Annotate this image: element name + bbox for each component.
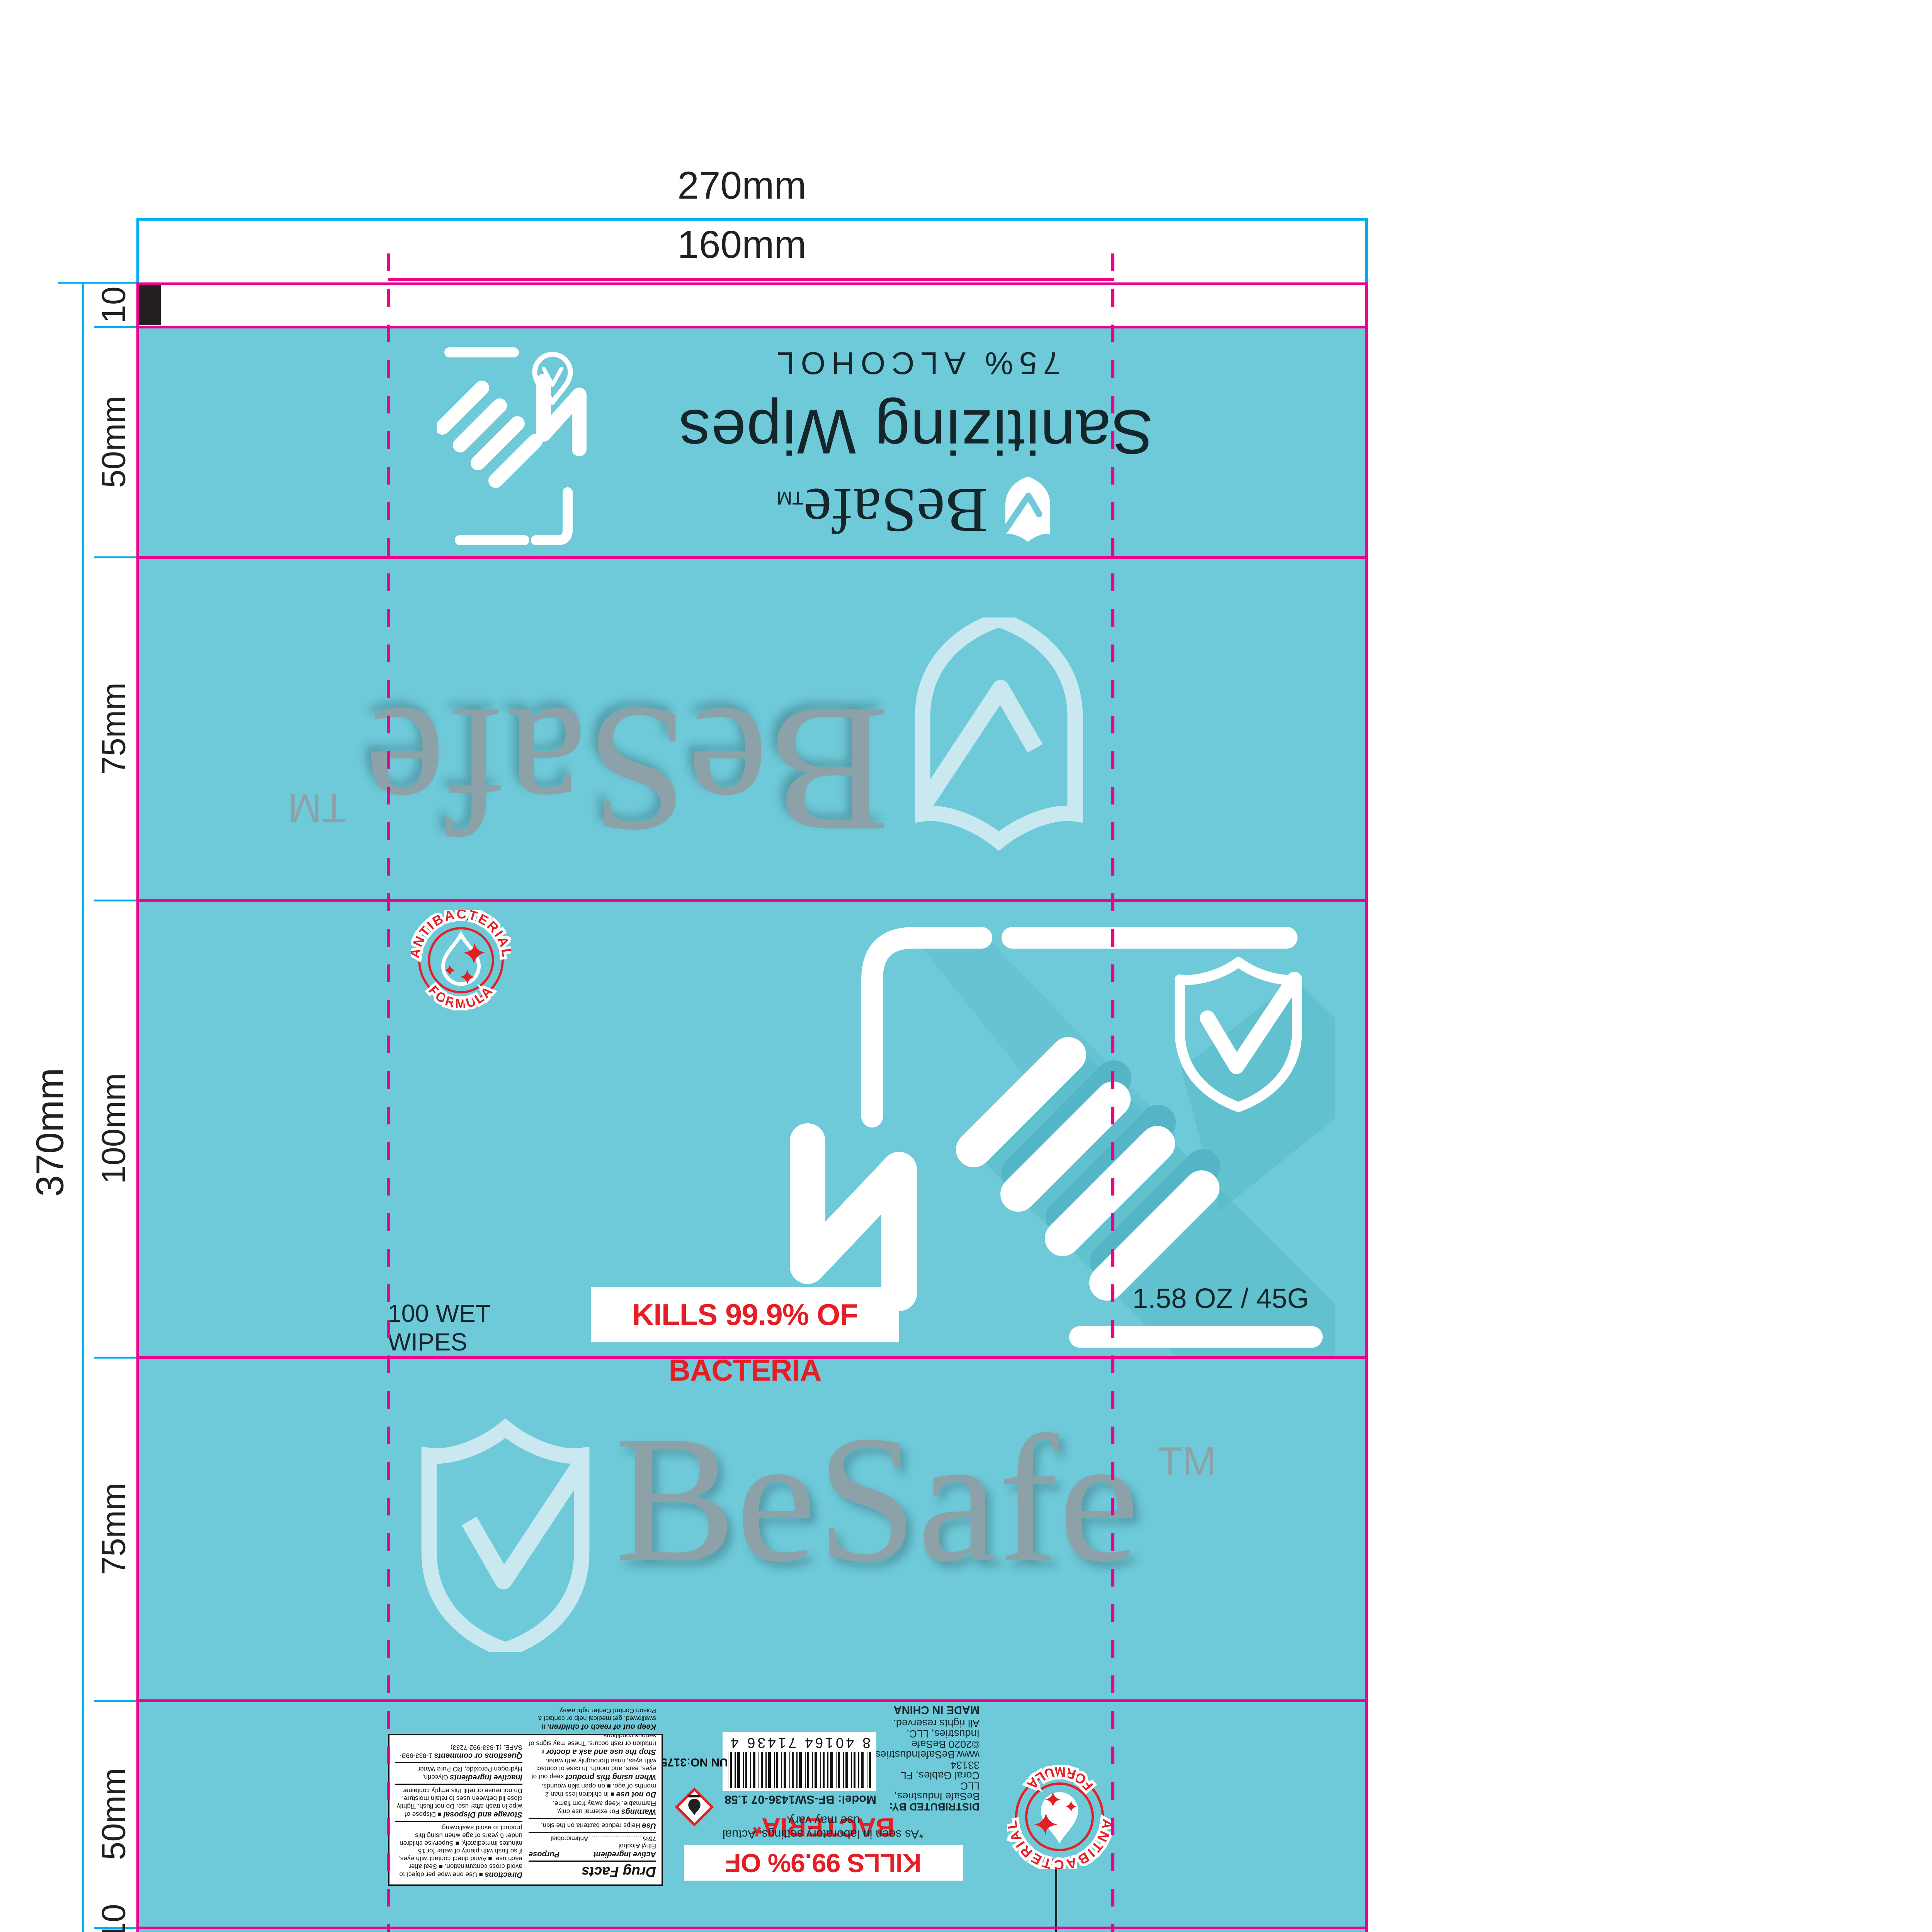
svg-text:FORMULA: FORMULA	[425, 983, 496, 1010]
df-body: Helps reduce bacteria on the skin.	[541, 1822, 640, 1829]
df-heading: Use	[642, 1821, 656, 1830]
drug-facts-title: Drug Facts	[529, 1864, 656, 1880]
dim-label-370mm: 370mm	[23, 1009, 77, 1256]
brand-tm: TM	[777, 488, 803, 508]
df-heading: When using this product	[566, 1773, 656, 1781]
panel-front: ANTIBACTERIAL FORMULA	[136, 900, 1368, 1357]
crease-line-3	[136, 899, 1368, 902]
dim-label-270mm: 270mm	[626, 164, 858, 207]
dim-line-270mm	[136, 218, 1368, 221]
tick-2	[94, 556, 137, 558]
df-heading: Purpose	[529, 1850, 560, 1859]
df-body: ■ Use one wipe per object to avoid cross…	[398, 1824, 522, 1878]
distributor-line: ©2020 BeSafe Industries, LLC.	[877, 1728, 980, 1749]
shield-check-icon	[1001, 476, 1055, 546]
section-label-10-top: 10	[91, 228, 137, 382]
back-claim-strip: KILLS 99.9% OF BACTERIA*	[684, 1845, 963, 1881]
watermark-name-2: BeSafe	[615, 1415, 1139, 1582]
crease-line-6	[136, 1927, 1368, 1929]
callout-line	[1055, 1869, 1057, 1932]
section-label-10-bottom: 10	[91, 1872, 137, 1932]
dim-line-160mm	[388, 278, 1114, 281]
watermark-name: BeSafe	[365, 687, 889, 854]
svg-text:FORMULA: FORMULA	[1023, 1765, 1096, 1794]
registration-mark	[139, 285, 161, 325]
section-label-50mm-top: 50mm	[91, 365, 137, 519]
cut-line-right	[1365, 282, 1368, 1932]
crease-line-1	[136, 326, 1368, 328]
df-heading: Keep out of reach of children.	[547, 1723, 656, 1731]
barcode-digits: 8 40164 71436 4	[723, 1735, 876, 1751]
watermark-logo-2: BeSafe TM	[415, 1415, 1216, 1652]
shield-check-watermark-icon	[415, 1415, 596, 1652]
df-body: Ethyl Alcohol 75%.......................…	[529, 1835, 656, 1850]
made-in-china: MADE IN CHINA	[877, 1704, 980, 1715]
section-label-50mm-bottom: 50mm	[91, 1737, 137, 1891]
tick-3	[94, 900, 137, 901]
dim-label-160mm: 160mm	[626, 223, 858, 266]
tick-5	[94, 1700, 137, 1702]
dim-line-370mm	[82, 282, 84, 1932]
net-weight: 1.58 OZ / 45G	[1133, 1283, 1349, 1315]
distributor-line: BeSafe Industries, LLC	[877, 1781, 980, 1801]
fold-line-left	[387, 253, 390, 1932]
top-flap-text: BeSafeTM Sanitizing Wipes 75% ALCOHOL	[626, 345, 1206, 546]
fold-line-right	[1111, 253, 1114, 1932]
badge-back-arc-bottom: FORMULA	[1023, 1765, 1096, 1794]
barcode-bars	[728, 1752, 871, 1788]
ghs-flammable-icon	[675, 1772, 714, 1828]
distributor-line: www.BeSafeIndustries.com	[877, 1749, 980, 1760]
df-heading: Stop the use and ask a doctor	[546, 1748, 656, 1756]
crease-line-4	[136, 1356, 1368, 1359]
df-heading: Storage and Disposal	[444, 1810, 523, 1819]
product-name: Sanitizing Wipes	[626, 396, 1206, 468]
cut-line-left	[136, 282, 139, 1932]
crease-line-5	[136, 1699, 1368, 1702]
crease-line-2	[136, 556, 1368, 559]
distributor-line: DISTRIBUTED BY:	[877, 1801, 980, 1812]
panel-top-flap: BeSafeTM Sanitizing Wipes 75% ALCOHOL	[136, 327, 1368, 557]
watermark-tm: TM	[288, 784, 347, 831]
section-label-100mm: 100mm	[91, 1051, 137, 1206]
shield-check-watermark-icon	[908, 617, 1090, 854]
panel-back-top: BeSafe TM	[136, 557, 1368, 900]
glue-strip	[139, 285, 1365, 327]
hand-wipe-icon	[437, 340, 593, 550]
dim-ext-right	[1365, 221, 1368, 284]
panel-bottom-flap: ANTIBACTERIAL FORMULA KILLS 99.9% OF BAC…	[136, 1701, 1368, 1928]
watermark-tm-2: TM	[1158, 1439, 1216, 1485]
un-number: UN NO:3175	[651, 1755, 738, 1769]
df-heading: Active Ingredient	[594, 1850, 656, 1859]
lab-disclaimer: *As seen in laboratory settings. Actual …	[719, 1813, 927, 1841]
panel-back-bottom: BeSafe TM	[136, 1357, 1368, 1701]
distributor-line: All rights reserved.	[877, 1718, 980, 1728]
brand-logo: BeSafeTM	[626, 476, 1206, 546]
alcohol-claim: 75% ALCOHOL	[626, 345, 1206, 381]
dieline-artboard: 270mm 160mm 370mm 10 50mm 75mm 100mm 75m…	[0, 0, 1932, 1932]
drug-facts-label: Drug Facts Active IngredientPurpose Ethy…	[388, 1734, 663, 1886]
kills-claim-box: KILLS 99.9% OF BACTERIA	[591, 1287, 899, 1342]
cut-line-top	[136, 282, 1368, 285]
section-label-75mm-top: 75mm	[91, 651, 137, 806]
wipe-count: 100 WET WIPES	[388, 1299, 565, 1356]
distributor-line: Coral Gables, FL 33134	[877, 1760, 980, 1781]
badge-arc-bottom: FORMULA	[425, 983, 496, 1010]
watermark-logo: BeSafe TM	[288, 617, 1090, 854]
df-heading: Inactive Ingredients	[450, 1773, 522, 1782]
barcode: 8 40164 71436 4	[723, 1732, 876, 1791]
antibacterial-badge: ANTIBACTERIAL FORMULA	[411, 910, 511, 1010]
df-heading: Questions or comments	[434, 1752, 522, 1760]
antibacterial-badge-back: ANTIBACTERIAL FORMULA	[1007, 1765, 1112, 1869]
df-heading: Do not use	[616, 1790, 656, 1799]
section-label-75mm-bottom: 75mm	[91, 1452, 137, 1606]
brand-name: BeSafe	[803, 476, 987, 546]
df-heading: Directions	[485, 1871, 522, 1879]
df-heading: Warnings	[621, 1808, 656, 1816]
package-flat: BeSafeTM Sanitizing Wipes 75% ALCOHOL	[136, 282, 1368, 1932]
tick-4	[94, 1357, 137, 1359]
distributor-block: DISTRIBUTED BY: BeSafe Industries, LLC C…	[877, 1704, 980, 1812]
